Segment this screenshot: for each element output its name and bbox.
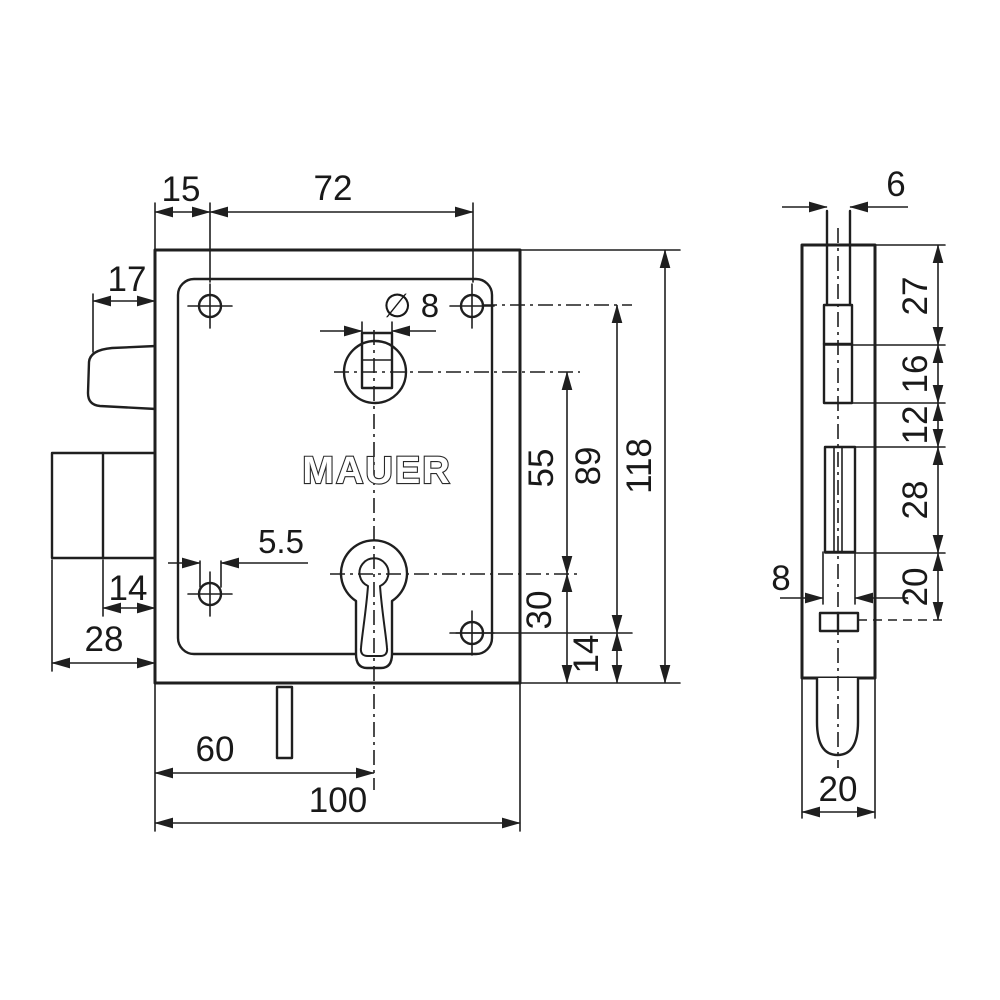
- dim-plate-height-label: 118: [620, 438, 659, 494]
- dim-faceplate-width-label: 6: [886, 165, 905, 204]
- side-view: 6 8 20 27 16 12 28 20: [771, 165, 948, 818]
- dim-latch-width-label: 17: [108, 260, 147, 299]
- drawing-canvas: 15 72 17 ∅ 8 5.5 14 28 60 100 55 30 89 1…: [0, 0, 1000, 1000]
- spindle-hub: [344, 333, 406, 403]
- dim-hub-hole-label: ∅ 8: [383, 287, 439, 324]
- dim-screw-spacing-label: 72: [314, 169, 353, 208]
- key-channel: [825, 447, 855, 552]
- dim-top-offset-label: 15: [162, 170, 201, 209]
- dim-screw-bottom-label: 14: [567, 635, 606, 674]
- dim-seg-mid-label: 12: [896, 406, 935, 445]
- dim-hub-to-key-label: 55: [522, 449, 561, 488]
- dim-screw-span-label: 89: [569, 447, 608, 486]
- dim-plate-width-label: 100: [309, 781, 367, 820]
- latch-bolt: [88, 346, 156, 409]
- dim-key-center-label: 60: [196, 730, 235, 769]
- dim-case-depth-label: 20: [819, 770, 858, 809]
- dim-seg-top-label: 27: [896, 277, 935, 316]
- brand-logo: MAUER: [302, 450, 451, 492]
- dim-seg-lower-label: 20: [896, 568, 935, 607]
- dead-bolt: [52, 453, 155, 558]
- dim-seg-latch-label: 16: [896, 355, 935, 394]
- key-guide-slot: [277, 687, 292, 758]
- dim-key-to-bottom-label: 30: [520, 591, 559, 630]
- dim-screw-hole-label: 5.5: [258, 523, 304, 560]
- dim-bolt-throw-label: 14: [109, 569, 148, 608]
- slot-detail: [820, 613, 948, 631]
- dim-bolt-width-label: 28: [85, 620, 124, 659]
- dim-channel-width-label: 8: [771, 559, 790, 598]
- dim-seg-key-label: 28: [896, 481, 935, 520]
- lock-technical-drawing: 15 72 17 ∅ 8 5.5 14 28 60 100 55 30 89 1…: [0, 0, 1000, 1000]
- front-view: 15 72 17 ∅ 8 5.5 14 28 60 100 55 30 89 1…: [52, 169, 680, 831]
